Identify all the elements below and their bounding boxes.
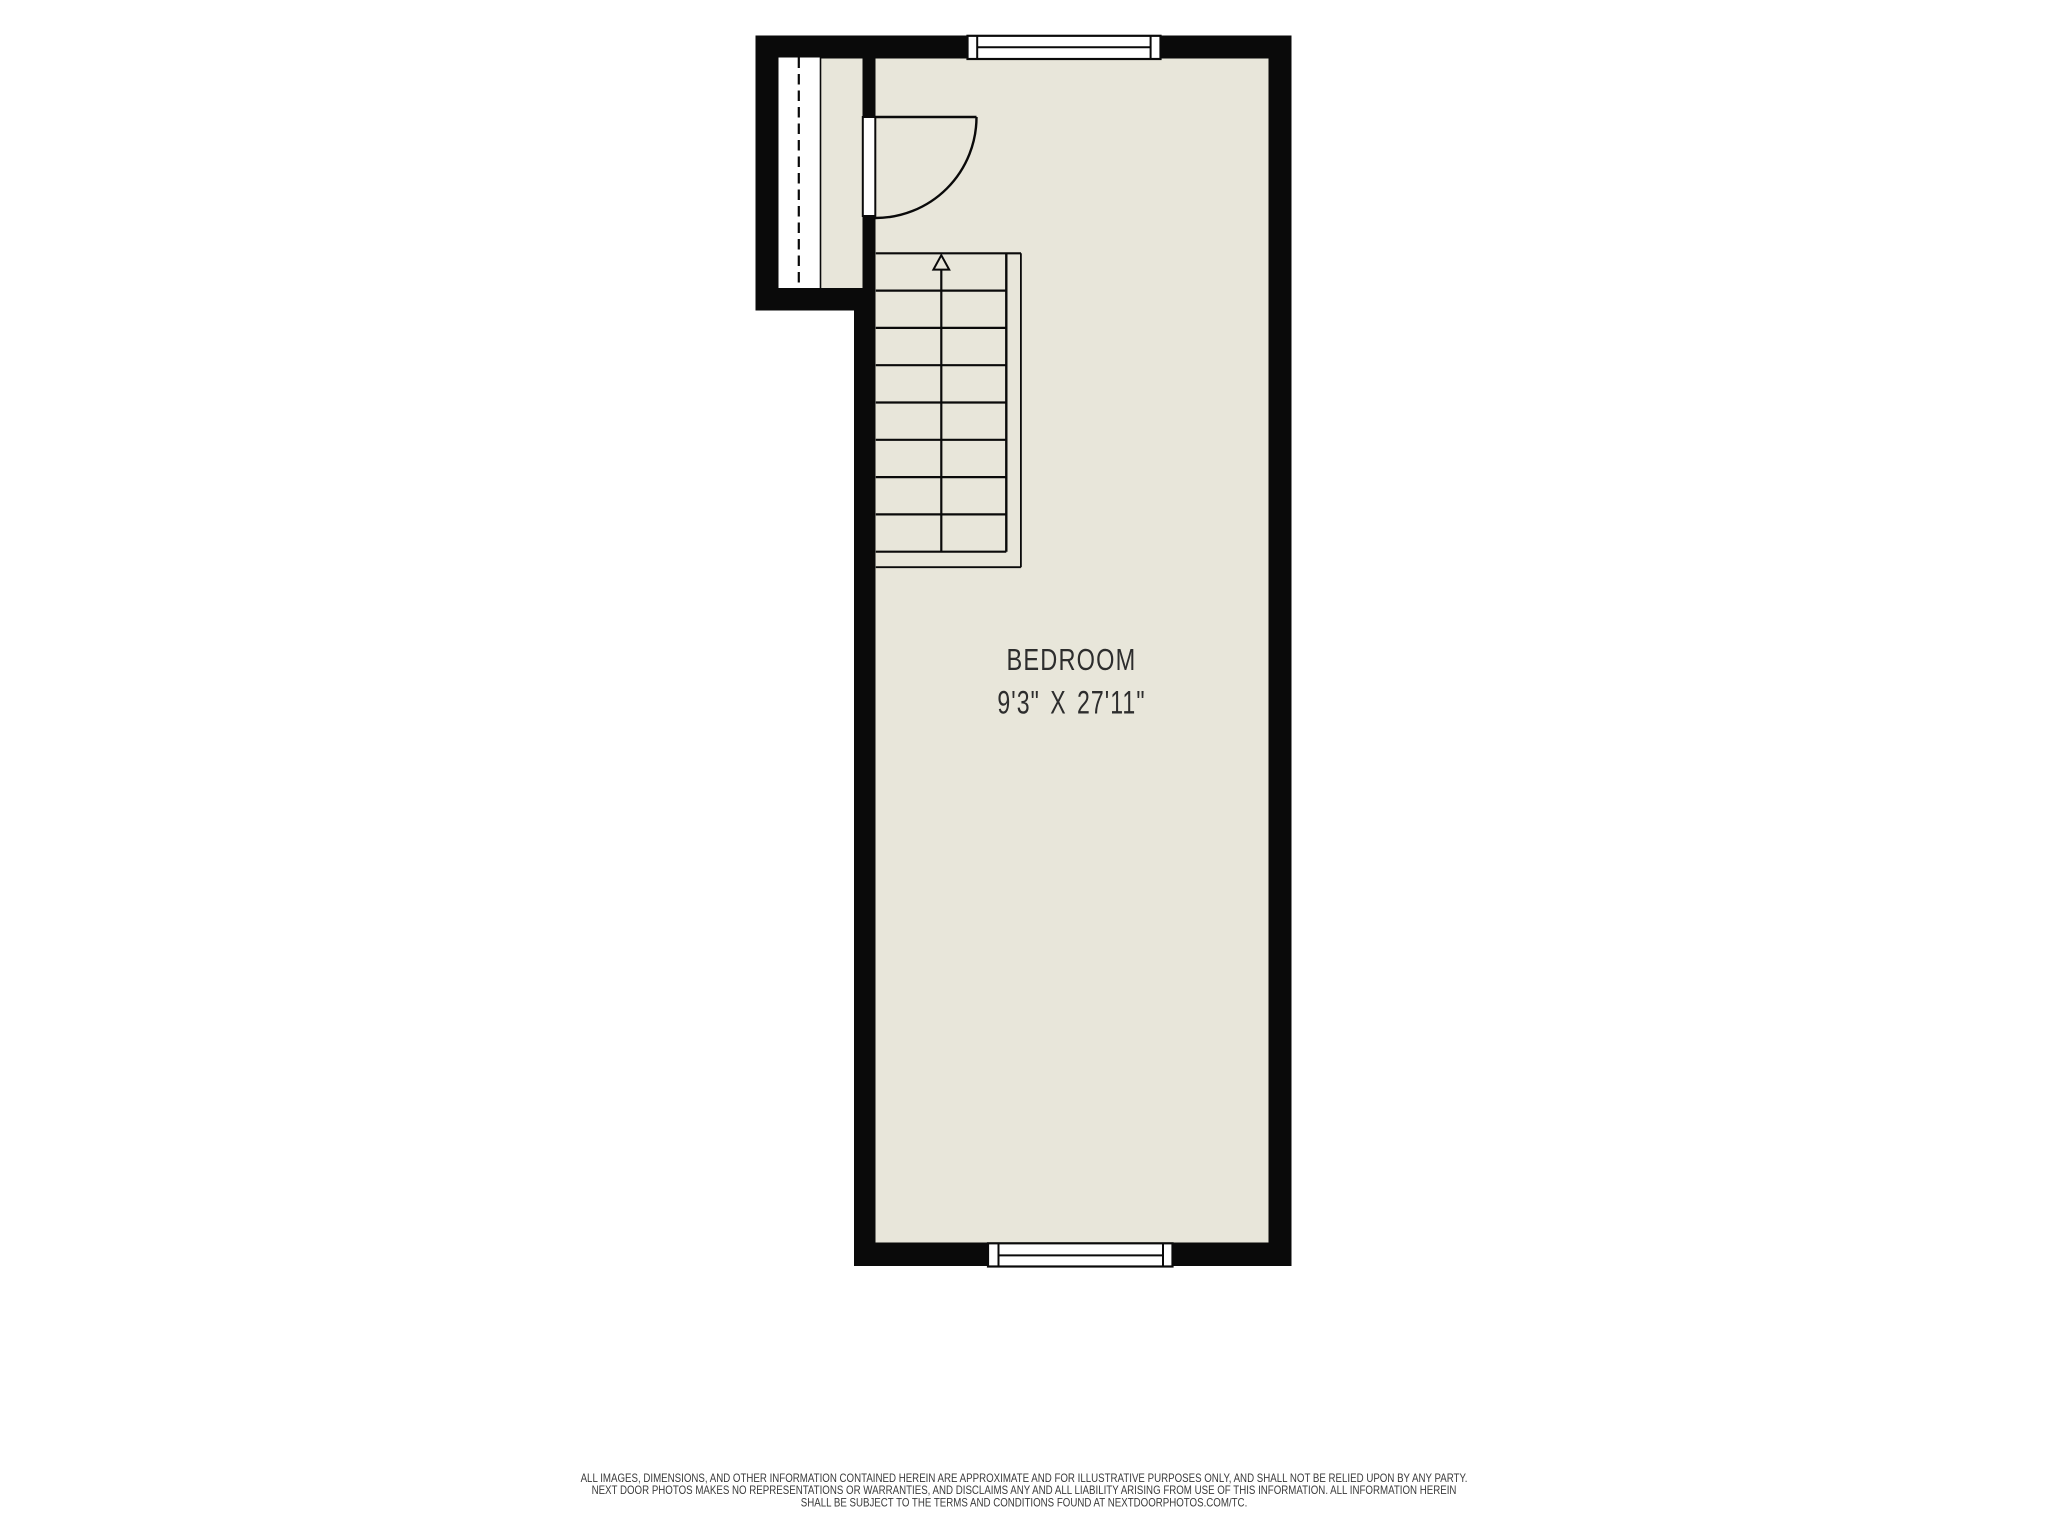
- svg-text:SHALL BE SUBJECT TO THE TERMS: SHALL BE SUBJECT TO THE TERMS AND CONDIT…: [801, 1497, 1248, 1510]
- svg-text:ALL IMAGES, DIMENSIONS, AND OT: ALL IMAGES, DIMENSIONS, AND OTHER INFORM…: [581, 1472, 1468, 1485]
- svg-text:NEXT DOOR PHOTOS MAKES NO REPR: NEXT DOOR PHOTOS MAKES NO REPRESENTATION…: [592, 1484, 1457, 1497]
- svg-text:BEDROOM: BEDROOM: [1007, 642, 1137, 677]
- svg-text:9'3" X 27'11": 9'3" X 27'11": [997, 684, 1145, 721]
